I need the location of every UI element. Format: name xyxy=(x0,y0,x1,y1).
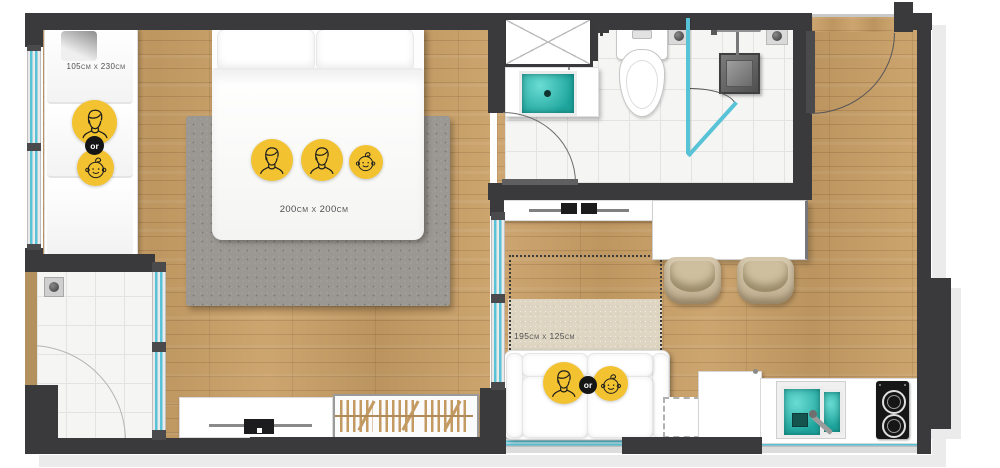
wall-right-bottom xyxy=(917,429,931,454)
mirror-cabinet xyxy=(503,17,593,67)
balcony-door-junction xyxy=(152,342,166,352)
balcony-door-frame xyxy=(152,430,166,440)
wall-left-top xyxy=(25,13,43,47)
tv-stand-dot xyxy=(257,428,262,433)
wardrobe-rail xyxy=(335,415,473,417)
wall-top xyxy=(25,13,812,30)
bed-dimension-label: 200cm x 200cm xyxy=(256,204,372,215)
glass-partition-cap xyxy=(491,382,505,390)
shower-glass-panel xyxy=(686,18,690,154)
wall-right xyxy=(917,13,931,280)
shower-head xyxy=(719,53,760,94)
floor-plan: 105cm x 230cm or 200cm x 200cm 195cm x 1… xyxy=(0,0,1000,468)
window-living-sill xyxy=(506,446,622,453)
living-sofa-dimension-label: 195cm x 125cm xyxy=(514,331,575,341)
window-frame-tick xyxy=(27,143,41,151)
window-kitchen-sill xyxy=(762,446,918,453)
sofa-bed-dimension-label: 105cm x 230cm xyxy=(58,62,134,71)
wall-right-thick xyxy=(917,278,951,429)
wardrobe xyxy=(333,394,479,442)
tv-stand xyxy=(561,203,597,214)
kitchen-cabinet xyxy=(698,371,762,440)
baby-icon xyxy=(349,145,383,179)
window-frame-tick xyxy=(27,244,41,250)
wall-bathroom-bottom xyxy=(488,183,812,200)
wall-bottom-left xyxy=(25,438,250,454)
sofa-armrest xyxy=(506,353,523,438)
bed-pillow xyxy=(217,29,315,72)
balcony-drain xyxy=(44,277,64,297)
wall-balcony-left xyxy=(25,270,37,387)
tv-console-bedroom xyxy=(179,397,333,438)
burner-icon xyxy=(882,414,906,438)
window-frame-tick xyxy=(27,45,41,51)
toilet-bowl xyxy=(619,49,665,117)
kitchen-faucet-base xyxy=(809,410,817,418)
wall-bottom-bedroom xyxy=(250,437,497,454)
or-badge: or xyxy=(85,136,104,155)
baby-icon xyxy=(593,366,628,401)
or-badge: or xyxy=(579,376,597,394)
wall-bedroom-balcony xyxy=(25,254,155,272)
tv-console-living xyxy=(503,200,657,221)
glass-partition-junction xyxy=(491,294,505,303)
shower-pipe xyxy=(736,31,739,55)
toilet xyxy=(615,25,667,117)
bathroom-vanity xyxy=(505,67,599,117)
dining-chair xyxy=(664,257,721,304)
bathroom-door-leaf xyxy=(502,179,578,185)
toilet-flush-button xyxy=(632,30,652,39)
dining-chair xyxy=(737,257,794,304)
entry-sill xyxy=(812,14,894,17)
adult-icon xyxy=(301,139,343,181)
living-sofa-bed xyxy=(504,350,670,440)
vanity-sink xyxy=(519,71,577,116)
sofa-cushion xyxy=(47,178,133,255)
glass-partition-cap xyxy=(491,212,505,220)
sofa-pillow-fold xyxy=(61,31,97,61)
balcony-door-frame xyxy=(152,262,166,272)
burner-icon xyxy=(882,390,906,414)
bed-pillow xyxy=(316,29,414,72)
adult-icon xyxy=(251,139,293,181)
cooktop xyxy=(876,381,909,439)
wall-bottom-mid xyxy=(622,437,762,454)
wall-partition-bottom xyxy=(480,388,506,454)
dining-table xyxy=(652,200,808,260)
entry-threshold xyxy=(812,16,894,32)
side-unit-outline xyxy=(663,397,700,438)
balcony-glass-door xyxy=(152,268,166,440)
